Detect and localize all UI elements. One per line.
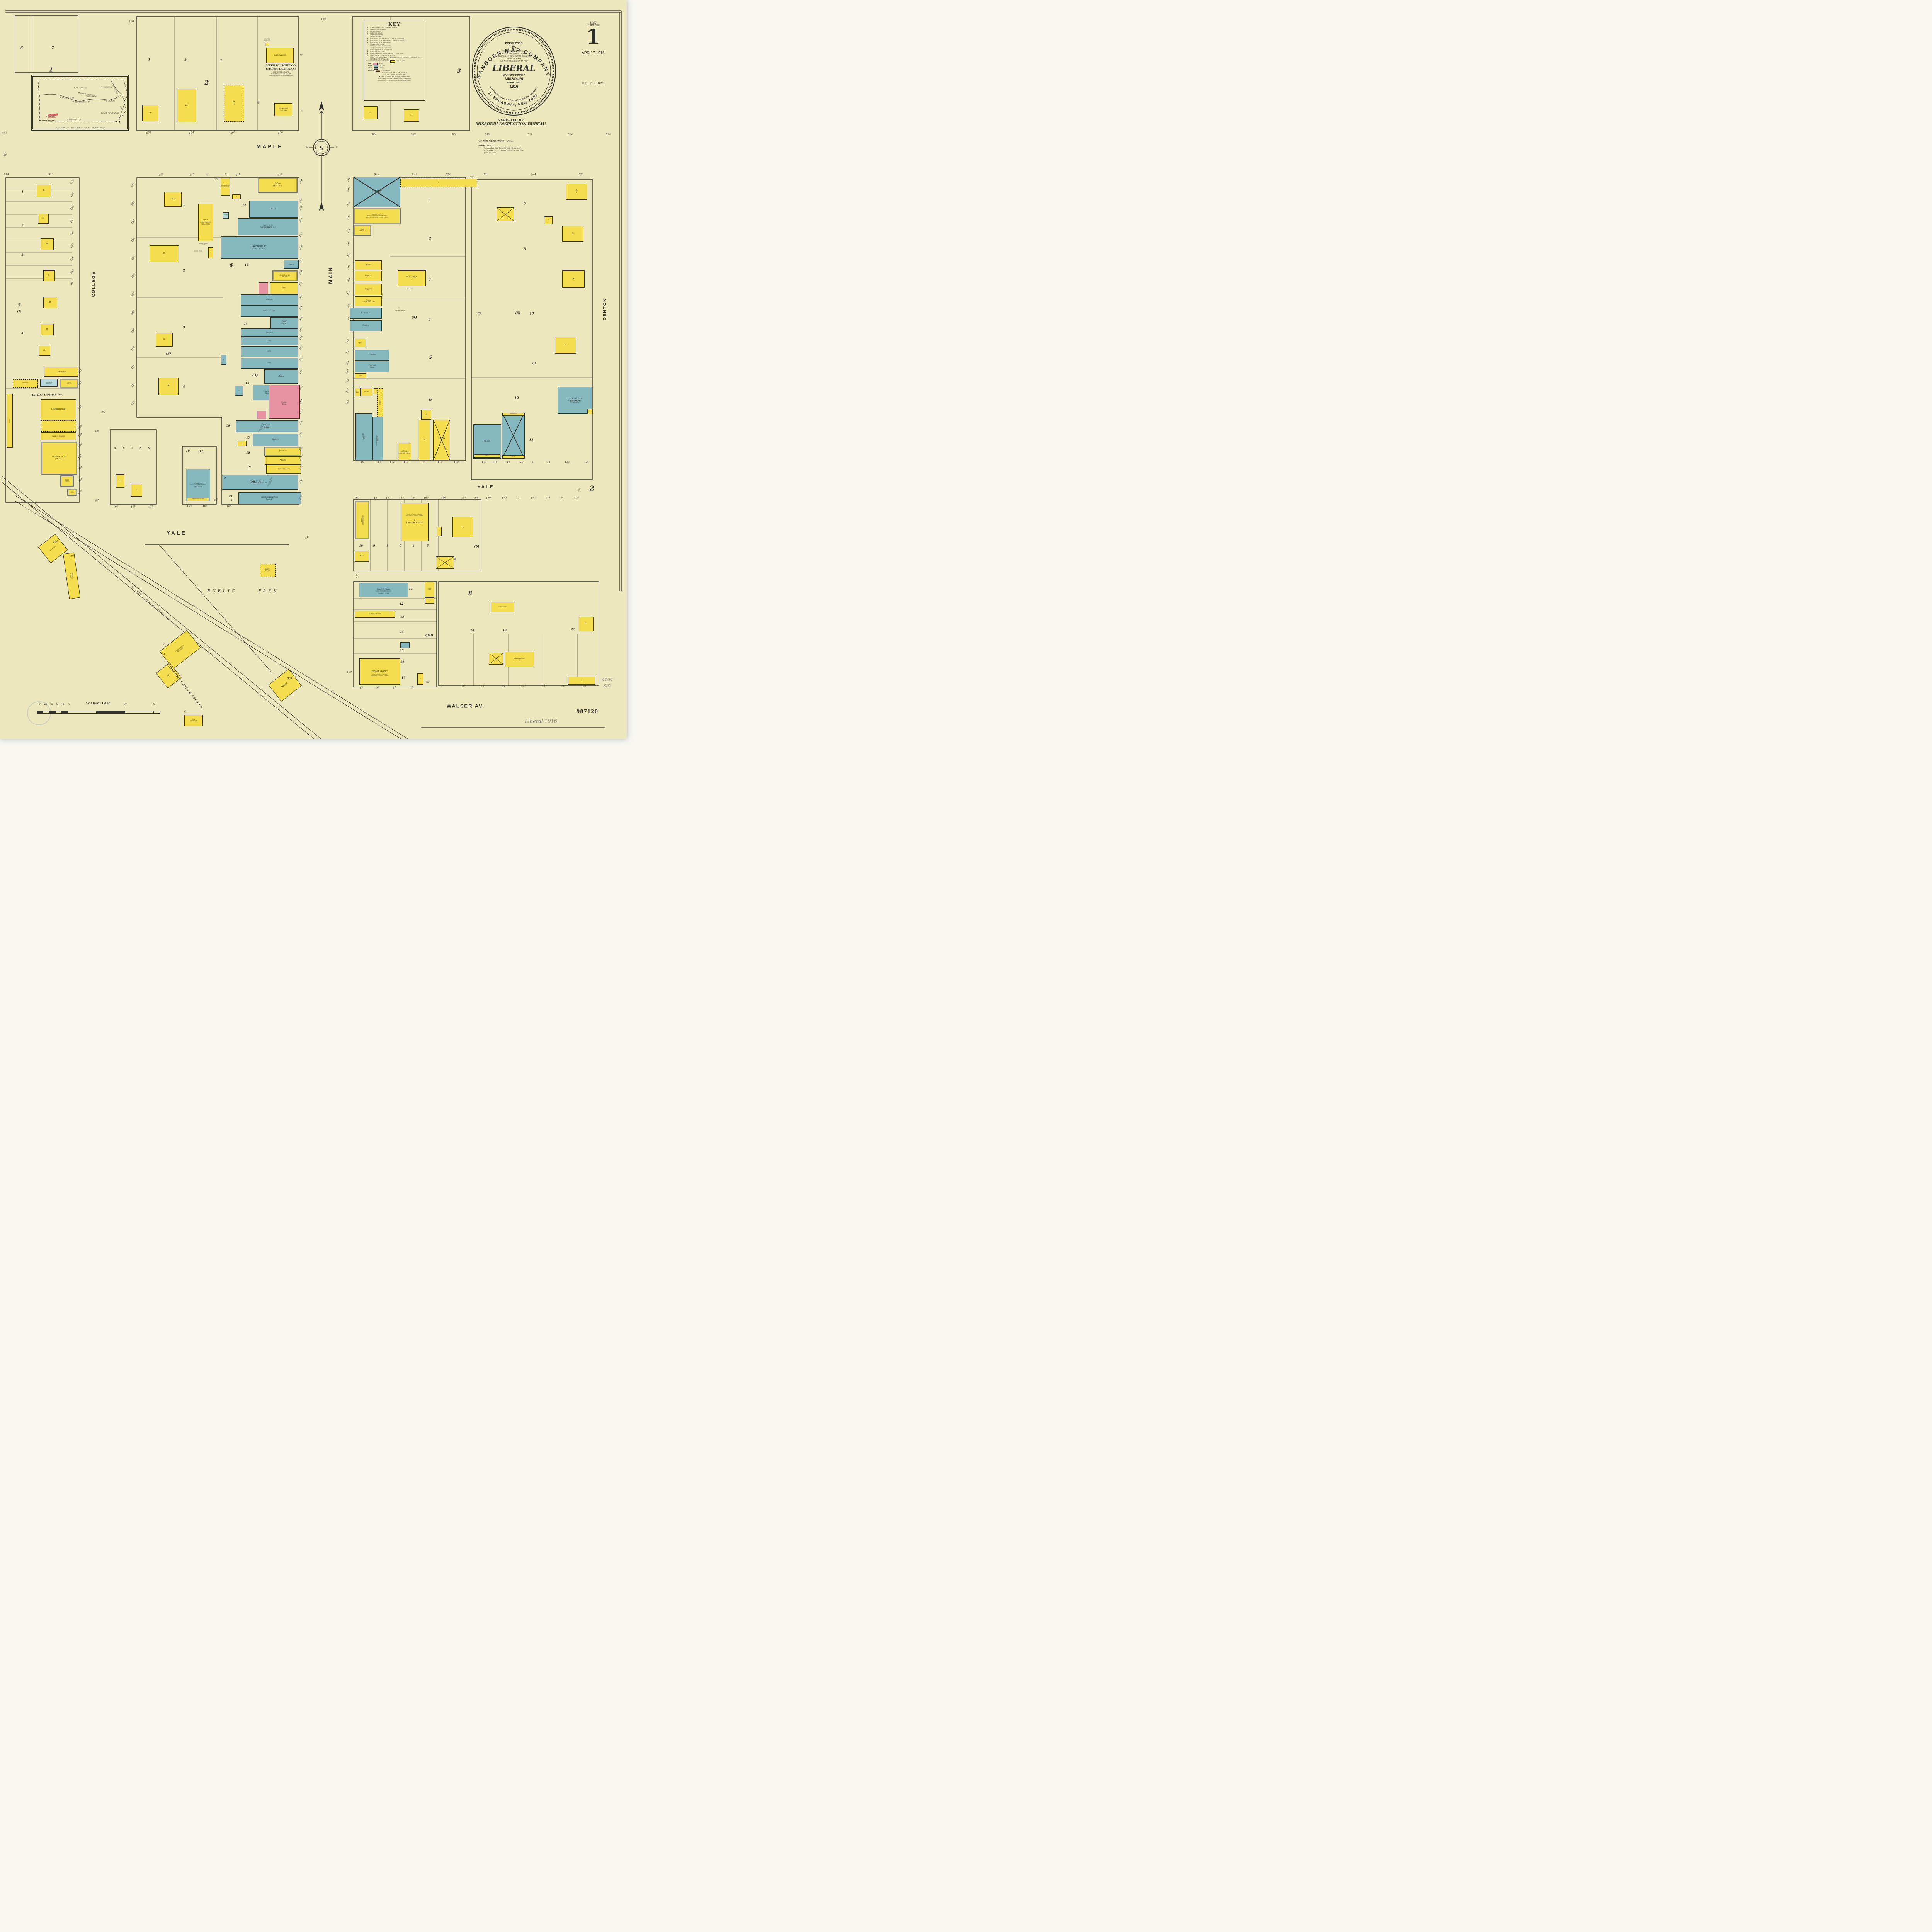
block-number: (5) [515, 311, 520, 315]
building-1: 1 [587, 409, 593, 414]
map-annotation: 207½ [406, 288, 413, 290]
building-label: PAINT & HARDW. (1R.CL.) [65, 480, 69, 483]
inset-city-st-joseph: ST. JOSEPH [76, 87, 86, 89]
scale-tick: 0 [68, 704, 69, 706]
building-1: 1 [221, 355, 226, 365]
building-1: 1 [131, 484, 142, 497]
block-outline [439, 582, 599, 686]
block-number: 15 [400, 649, 404, 652]
map-annotation: B. [225, 174, 227, 177]
scale-tick: 50 [96, 704, 99, 706]
map-annotation: E [336, 147, 338, 150]
building-d: D. [43, 297, 57, 308]
inset-city-hannibal: HANNIBAL [103, 86, 112, 88]
building-d: D. [562, 226, 583, 241]
building-variety: Variety [253, 434, 298, 446]
building-auto: AUTO [425, 597, 434, 604]
map-annotation: GASOL. TANK [395, 310, 405, 311]
sheet-corner-marks: 1188 (2 SHEETS) 1 APR 17 1916 ©CLF 29829 [564, 21, 622, 85]
seal-county: BARTON COUNTY [503, 74, 526, 77]
building-label: D. [572, 233, 574, 235]
building-label: Jeweler [279, 450, 286, 452]
map-annotation: 2-50 GAL. CHEMICAL ENGS: 100', 1" HOSE [398, 452, 411, 454]
street-number: 20' [425, 681, 430, 684]
block-number: 5 [429, 355, 432, 361]
building-label: SHED [379, 401, 381, 405]
building-label: FRAME 2ND [510, 414, 517, 415]
building-d: D. [37, 185, 51, 197]
building-label: D. [43, 350, 45, 352]
cross-brace [502, 413, 524, 458]
street-number: 26 [583, 685, 586, 688]
building-gen-l-s: Gen'l. S. [241, 328, 298, 337]
building-corn: CORN CRIB [425, 582, 434, 597]
building-label: LIME & CEMENT [70, 570, 73, 581]
block-number: 10 [186, 449, 190, 452]
building-label: Meats [280, 459, 286, 462]
building-label: MOTION PICTURES HALL 2ⁿᵈ [261, 497, 278, 500]
block-number: 12 [514, 396, 519, 400]
map-annotation: 200 GALS. FUEL OIL [264, 39, 270, 41]
date-stamp: APR 17 1916 [564, 51, 622, 55]
building-: Barber Bank [269, 385, 300, 419]
railroad-track [2, 482, 320, 739]
building-label: CONCRETE SAND PIT [46, 382, 52, 384]
cross-brace [354, 177, 400, 207]
surveyed-by-line1: SURVEYED BY [476, 118, 546, 122]
sheet-number: 1 [564, 27, 622, 48]
building-office: Office (1R. CL.) [258, 178, 297, 192]
building-label: 1 [236, 196, 237, 197]
street-label-denton: DENTON [603, 298, 608, 320]
building-label: SHINGLE SHED [22, 382, 28, 385]
map-annotation: PARK [259, 589, 279, 594]
fire-dept-line: 100' 1" hose. [484, 152, 606, 154]
building-1: 1 [568, 677, 595, 685]
building-label: EARTH FLOOR [274, 54, 286, 56]
building-label: D. [585, 623, 587, 626]
block-number: 5 [21, 331, 24, 335]
building-corn-crib: CORN CRIB [491, 602, 514, 612]
building-label: D. [163, 252, 165, 255]
block-number: 16 [400, 660, 404, 663]
block-number: (10) [425, 634, 433, 638]
scale-tick: 50 [39, 704, 41, 706]
block-number: 18 [470, 629, 474, 632]
building-label: D. [43, 218, 44, 219]
scale-bar-ticks: 5040302010050100150 [37, 714, 160, 717]
block-number: 8 [387, 544, 389, 548]
color-swatch [390, 60, 395, 63]
city-label: JOPLIN [48, 120, 54, 122]
building-label: COAL & ICE [356, 391, 359, 393]
building-racket: Racket [241, 294, 298, 306]
building-label: ICE HO. [364, 391, 369, 393]
building-d: D. [452, 517, 473, 537]
street-label-yale: YALE [478, 485, 494, 490]
building-label: D. [43, 190, 45, 192]
building-gro: Gro. [241, 346, 298, 357]
building-telephone: TELEPHONE SUPPLIES [274, 103, 292, 116]
compass-north-arrow: S [304, 100, 339, 213]
building-d: D. [158, 378, 179, 395]
building-frame-1st-ir-cl-2nd: FRAME 1ST IR. CL. 2ND [187, 498, 209, 501]
city-label: CAPE GIRARDEAU [102, 112, 119, 114]
building-label: 1 [241, 443, 243, 444]
building-d: D. [43, 270, 55, 281]
building-confy-1: Confy. 1ˢᵗ D. 2ⁿᵈ [355, 413, 372, 460]
facilities-notes: WATER FACILITIES : None. FIRE DEPT: Loca… [478, 140, 606, 154]
street-number: 15 [359, 686, 363, 690]
street-label-maple: MAPLE [257, 143, 283, 150]
building-label: BALE TIES [49, 546, 56, 551]
building-label: 1½ D. [170, 198, 176, 200]
block-number: 10 [359, 544, 363, 548]
block-number: 10 [529, 311, 534, 315]
inset-caption: LOCATION OF THIS TOWN AS ABOVE UNDERLINE… [55, 127, 104, 129]
street-number: 20' [214, 499, 218, 502]
street-label-main: MAIN [328, 266, 334, 284]
block-number: 4 [454, 558, 456, 561]
copyright-stamp: ©CLF 29829 [564, 82, 622, 85]
street-number: 16 [375, 686, 379, 690]
building-label: LUMBER SHED (1R. CL.) [52, 456, 66, 460]
map-annotation: PUBLIC [207, 589, 237, 594]
building-label: SALT [167, 673, 171, 677]
building [502, 413, 525, 459]
sanborn-seal: SANBORN MAP COMPANY.11 BROADWAY, NEW YOR… [468, 24, 560, 119]
building-jeweler: Jeweler [265, 447, 301, 456]
building-livery: LIVERY [354, 177, 400, 207]
block-number: (1) [17, 310, 22, 313]
street-number: 25 [561, 685, 565, 688]
street-number: 20' [470, 176, 474, 179]
building-harness-1: Harness 1ˢᵗ [350, 308, 382, 319]
building-label: Hardw. [365, 264, 371, 266]
key-footer-list: ⑤ ㊉ INDICATE RELATIVE HEIGHTSⒶⓈ AUTOMATI… [366, 72, 423, 81]
map-annotation: ELECTRIC LIGHT PLANT [266, 68, 296, 70]
building-d: D. [41, 324, 54, 335]
building-label: OZARK HOTEL [372, 670, 388, 673]
block-number: 3 [183, 325, 185, 329]
map-annotation: W [306, 147, 308, 150]
building-paint: PAINT & HARDW. (1R.CL.) [61, 476, 73, 486]
building-shed: SHED [377, 388, 383, 417]
building-label: D. 2 [576, 190, 578, 194]
map-annotation: HEAT: STOVE:- LIGHTS: ELECTRIC:- 1-20 HP… [269, 72, 293, 77]
building-label: HAY WARE HO. 1 [514, 658, 525, 661]
map-annotation: BAND STAND [265, 569, 270, 572]
building-auto: AUTO (1R. CL.) [60, 379, 78, 388]
building-label: D. [49, 301, 51, 304]
cross-brace [497, 208, 514, 221]
building-office: Office [355, 373, 366, 378]
building-label: Buggies [365, 288, 372, 290]
building-1r-cl: 1R. CL. [474, 454, 500, 458]
building-d: D. [39, 346, 50, 356]
inset-city-kansas-city: KANSAS CITY [62, 97, 74, 99]
building-sash-doors: SASH & DOORS [41, 432, 76, 440]
building-label: HAY STORAGE [190, 719, 197, 722]
street-label-college: COLLEGE [92, 271, 97, 297]
block-number: 2 [184, 58, 187, 61]
building-opera-ho: OPERA HO. WOOD SHEATHED CEILINGS [186, 469, 210, 501]
building-label: Gen'l. Mdse. [263, 310, 276, 313]
building-label: Impl'ts. [365, 275, 372, 277]
compass-monogram: S [320, 145, 323, 151]
scale-tick: 100 [123, 704, 127, 706]
building-h-c-b: (H.C.B.) [223, 212, 229, 219]
pencil-note: Liberal 1916 [525, 719, 557, 725]
key-item: COUNTING FROM LEFT TO RIGHT LOOKING TOWA… [366, 57, 423, 61]
block-number: 5 [427, 544, 429, 548]
map-annotation: IRON CLAD [382, 293, 383, 299]
building-label: 2 LIBERAL HOTEL [406, 520, 423, 524]
building-label: Office (1R. CL.) [273, 183, 282, 187]
building-label: 1 [238, 390, 240, 391]
map-annotation: GASOL. TANK [194, 250, 202, 252]
missouri-inset-map: ST. JOSEPHHANNIBALKANSAS CITYCOLUMBIAJEF… [31, 75, 129, 131]
building-label: NAILS [9, 419, 10, 423]
building-1: 1 [437, 527, 442, 536]
building-d-g: D. G. [249, 201, 298, 218]
key-color-text: ARE FRAME [396, 60, 405, 63]
block-number: (3) [252, 374, 258, 378]
building-office: Office [284, 260, 299, 269]
building-1: 1 [436, 556, 454, 569]
building-printing: Printing GASOL. ENG. 2HP [355, 296, 382, 306]
building-bank: Bank [264, 369, 298, 384]
building-label: Gro. [268, 362, 272, 364]
building-label: Office [359, 375, 362, 376]
building-meats: Meats [265, 456, 301, 465]
map-annotation: HEAT: STOVES:- LIGHTS: ELECTRIC & KEROS.… [371, 674, 389, 677]
block-number: (2) [166, 352, 171, 355]
building-label: Rest'r't Barber (1R. CL.) [280, 274, 290, 277]
key-title: KEY [366, 22, 423, 27]
building-nails: NAILS [7, 394, 13, 448]
street-number: 20 [461, 685, 465, 688]
building-lumber-shed: LUMBER SHED (1R. CL.) [41, 442, 77, 474]
block-number: 1 [49, 66, 53, 73]
block-number: 11 [532, 361, 536, 365]
building-d: D. 2 [566, 184, 587, 200]
map-annotation: WOOD SHEATHED CEILING [375, 590, 391, 592]
block-number: 15 [245, 382, 249, 385]
building-label: Barber Bank [281, 398, 287, 406]
building-carp: CARP. SHOP [116, 474, 124, 488]
building-label: D. [48, 275, 50, 277]
accession-stamp: 987120 [577, 709, 598, 714]
cross-brace [489, 653, 503, 664]
building-label: Sample Room [369, 613, 381, 615]
block-number: 8 [140, 447, 142, 450]
railroad-track [2, 476, 327, 739]
building-ozark-hotel: OZARK HOTEL [359, 658, 400, 685]
building-1: 1 [417, 673, 423, 685]
building-label: Printing GASOL. ENG. 2HP [362, 300, 374, 303]
building-label: 1 [426, 414, 427, 415]
building-1: 1 [400, 642, 410, 648]
city-label: KANSAS CITY [62, 97, 74, 99]
block-number: 9 [148, 447, 150, 450]
building-d: D. [38, 214, 49, 224]
building-bakery: Bakery [355, 350, 389, 361]
building-1: 1½ [544, 216, 553, 224]
building-label: CORN CRIB [498, 607, 507, 608]
block-number: 3 [457, 68, 461, 74]
building-label: 1 [438, 182, 439, 184]
building-d: D. [150, 245, 179, 262]
building-confy: Confy. & News [355, 361, 389, 372]
building-d: D. 2 [224, 85, 244, 122]
block-number: 14 [400, 630, 404, 633]
building-1: 1 [208, 247, 213, 258]
building-d: D. [364, 106, 378, 119]
block-number: 17 [401, 676, 405, 679]
building-rest-r-t-barber: Rest'r't Barber (1R. CL.) [273, 271, 297, 281]
building-label: Harness 1ˢᵗ [361, 312, 370, 314]
city-label: SPRINGFIELD [69, 119, 81, 121]
block-number: 6 [123, 447, 125, 450]
building-label: Hardware 1ˢᵗ Furniture 2ⁿᵈ [252, 245, 267, 250]
building-label: FRAME 1ST IR. CL. 2ND [192, 499, 204, 500]
street-number: 19 [439, 685, 442, 688]
scale-of-feet: Scale of Feet. 5040302010050100150 [37, 701, 160, 717]
building-label: OPERA HO. WOOD SHEATHED CEILINGS [190, 483, 206, 488]
pencil-catalog-2: S52 [603, 684, 612, 689]
building-label: D. [410, 114, 412, 117]
building-label: D. [46, 243, 48, 245]
block-number: 13 [245, 264, 248, 267]
inset-city-liberal: LIBERAL [48, 116, 56, 117]
building-earth-floor: EARTH FLOOR [266, 48, 294, 63]
building-2: 2 LIBERAL HOTEL [401, 503, 429, 541]
map-annotation: ○ [398, 307, 400, 309]
block-number: 2 [429, 236, 431, 240]
building-telephone: TELEPHONE EXCHANGE [221, 178, 230, 196]
building-1: 1½ [489, 653, 503, 665]
building-label: OFF. (1R.CL.) [70, 492, 74, 493]
seal-population: 900 [512, 45, 517, 48]
block-number: 6 [20, 46, 23, 50]
fire-dept-title: FIRE DEPT: [478, 144, 606, 147]
building-drugs: Drugs & Paints [236, 420, 298, 432]
building-1: 1 [400, 179, 477, 187]
block-number: 3 [219, 58, 222, 62]
block-number: 14 [244, 322, 248, 325]
street-number: 23 [521, 685, 524, 688]
block-number: 2 [204, 79, 209, 86]
building-label: WARE HO. 1 [406, 276, 417, 281]
block-number: 2 [21, 223, 24, 227]
map-annotation: LIBERAL LIGHT CO. [265, 64, 296, 67]
building-label: D. [185, 104, 188, 107]
block-number: 7 [477, 312, 481, 318]
street-number: 17 [393, 686, 396, 690]
building-label: Gro. [268, 340, 272, 342]
building-label: Office [358, 342, 362, 344]
block-number: 2 [183, 269, 185, 272]
building-label: TELEPHONE EXCHANGE [221, 185, 230, 188]
scale-segment [43, 711, 49, 713]
map-annotation: (IRON CLAD) [267, 457, 268, 464]
map-annotation: B. [163, 684, 165, 686]
key-symbol-list: ⅢWINDOWS 1.2.3 WITH WIRED GLASS3NUMBER O… [366, 27, 423, 60]
key-item-text: COUNTING FROM LEFT TO RIGHT LOOKING TOWA… [370, 57, 423, 61]
block-number: (20) [250, 481, 255, 484]
building-gro: Gro. [241, 337, 298, 345]
block-number: 11 [409, 587, 413, 590]
building-label: AUTO [428, 600, 432, 601]
building-office: Office [355, 339, 366, 347]
building-label: D. G. [271, 208, 276, 210]
street-number: 21 [481, 685, 484, 688]
scale-tick: 40 [44, 704, 47, 706]
block-number: 1 [148, 58, 150, 61]
inset-city-joplin: JOPLIN [48, 120, 54, 122]
building-label: 1R. CL. [512, 456, 515, 457]
building-label: Bowling Alley [277, 468, 289, 470]
building-coal: COAL & ICE [355, 388, 361, 396]
building-1r-cl: 1R. CL. [502, 455, 524, 458]
building-d: D. [156, 333, 173, 347]
block-number: 5 [114, 447, 116, 450]
building-post: POST OFFICE [270, 317, 298, 328]
street-label-yale: YALE [167, 530, 187, 536]
building-shingle: SHINGLE SHED [13, 379, 38, 388]
key-footer-item: CONSECUTIVE STREET NO'S ARE ARBITRARY [366, 80, 423, 82]
block-number: 11 [199, 450, 203, 453]
block-number: 3 [429, 277, 431, 281]
seal-fact: NO HOSE CART [506, 58, 522, 60]
building-gen-l-mdse: Gen'l. Mdse. [241, 306, 298, 317]
building-ice-ho: ICE HO. [361, 388, 372, 396]
building-off: OFF. (1R.CL.) [68, 489, 77, 495]
building-label: 1 [376, 391, 377, 392]
map-annotation: A. [163, 654, 166, 656]
building-label: D. 2 [233, 101, 235, 105]
building-label: TELEPHONE SUPPLIES [279, 108, 288, 111]
map-annotation: C. [184, 711, 187, 714]
block-number: 21 [229, 495, 233, 498]
block-number: 6 [229, 263, 233, 269]
street-number: 66' [95, 499, 99, 503]
block-number: 13 [400, 616, 404, 619]
building-label: D. [46, 328, 48, 331]
building-label: D. [369, 112, 371, 114]
building [265, 43, 269, 46]
key-color-list: BUILDINGS COLOREDYELLOWARE FRAME″ ″REDBR… [366, 60, 423, 72]
inset-city-jefferson-city: JEFFERSON CITY [75, 101, 90, 103]
block-number: 8 [468, 590, 472, 597]
block-number: 18 [246, 451, 250, 454]
building-1: 1 [421, 410, 431, 420]
building-label: Gen'l. S. 1ˢᵗ LODGE HALL 2ⁿᵈ [260, 225, 276, 229]
block-number: (6) [474, 544, 479, 548]
city-label: ST. JOSEPH [76, 87, 86, 89]
building-bowling-alley: Bowling Alley [266, 465, 301, 474]
building-meat: Meat (1R. CL.) [354, 225, 371, 235]
building-label: 1 [210, 252, 211, 253]
building-ware-ho: WARE HO. 1 [398, 270, 426, 286]
building-label: 1 [405, 645, 405, 646]
building-label: Gen'l. S. [266, 332, 273, 333]
inset-city-st-louis: ST. LOUIS [106, 100, 115, 102]
building-label: Bank [278, 375, 284, 378]
building-1: 1 [232, 194, 241, 199]
map-annotation: LIBERAL LUMBER CO. [30, 394, 62, 396]
